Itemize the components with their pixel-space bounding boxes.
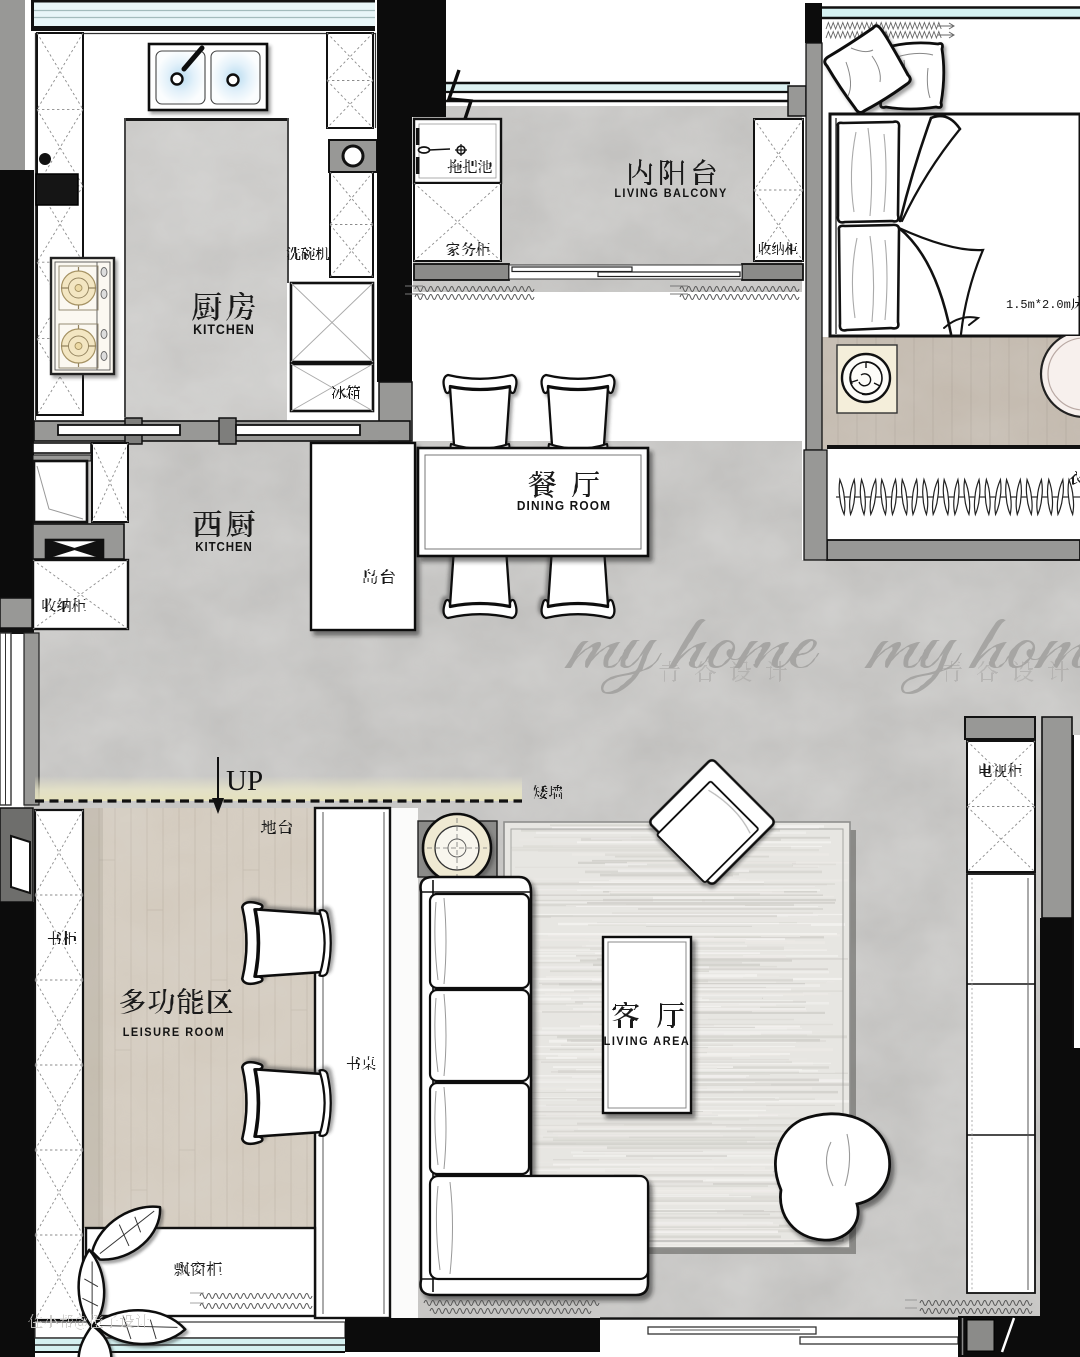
svg-text:LIVING BALCONY: LIVING BALCONY — [614, 188, 727, 200]
svg-text:LEISURE ROOM: LEISURE ROOM — [123, 1027, 226, 1039]
svg-text:KITCHEN: KITCHEN — [193, 322, 255, 338]
svg-text:DINING ROOM: DINING ROOM — [517, 499, 611, 513]
svg-text:KITCHEN: KITCHEN — [195, 540, 253, 555]
svg-text:UP: UP — [226, 765, 263, 797]
svg-text:1.5m*2.0m: 1.5m*2.0m — [1006, 298, 1071, 312]
svg-text:LIVING AREA: LIVING AREA — [604, 1036, 691, 1048]
